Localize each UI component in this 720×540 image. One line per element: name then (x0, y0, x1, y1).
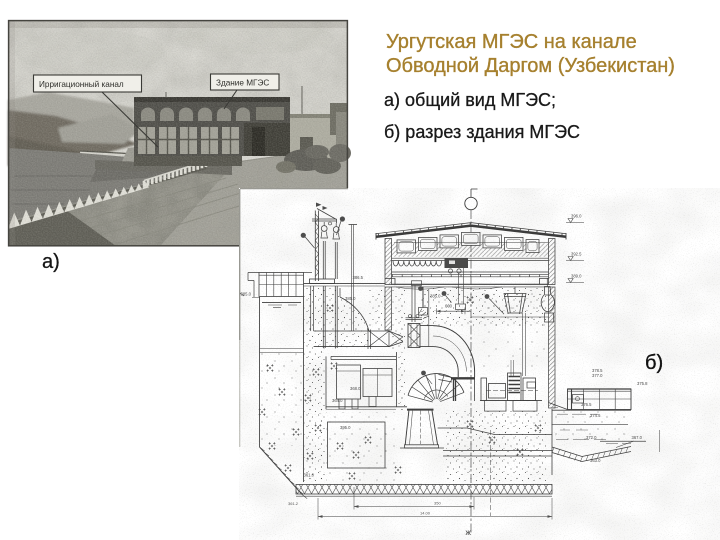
svg-text:Здание МГЭС: Здание МГЭС (216, 79, 269, 88)
svg-text:Ирригационный канал: Ирригационный канал (39, 80, 124, 89)
